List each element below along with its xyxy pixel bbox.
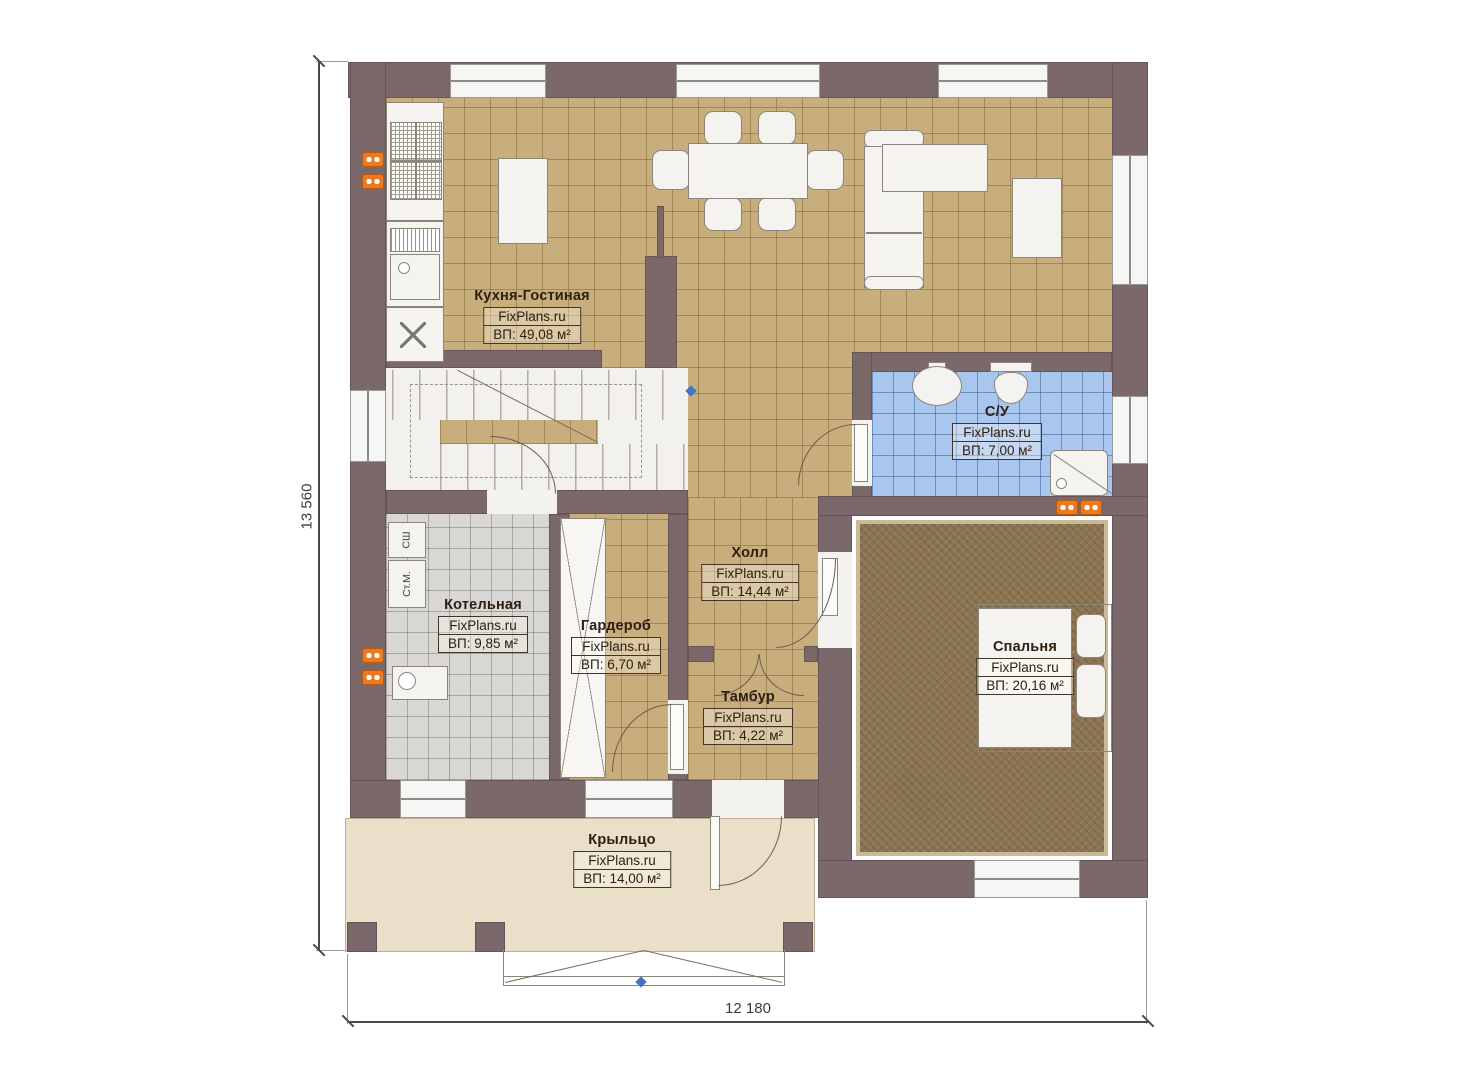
wardrobe-door-leaf — [670, 704, 684, 770]
window — [974, 860, 1080, 898]
washing-machine: Ст.М. — [388, 560, 426, 608]
room-label-box: FixPlans.ru ВП: 7,00 м² — [952, 423, 1042, 460]
room-area: ВП: 49,08 м² — [484, 326, 580, 343]
tambour-top-wall-left — [688, 646, 714, 662]
tambour-top-wall-right — [804, 646, 818, 662]
room-label-box: FixPlans.ru ВП: 9,85 м² — [438, 616, 528, 653]
room-name: Спальня — [976, 639, 1074, 655]
power-socket — [362, 670, 384, 685]
sofa-seam — [866, 232, 922, 234]
room-label-bedroom: Спальня FixPlans.ru ВП: 20,16 м² — [976, 639, 1074, 695]
extension-line — [1146, 900, 1147, 1024]
brand-text: FixPlans.ru — [704, 709, 792, 727]
room-name: Котельная — [438, 597, 528, 613]
counter-divider — [387, 306, 443, 308]
room-area: ВП: 4,22 м² — [704, 727, 792, 744]
drying-cabinet-label: СШ — [401, 531, 413, 548]
horizontal-dimension-label: 12 180 — [698, 1000, 798, 1017]
shower-drain — [1056, 478, 1067, 489]
room-name: Гардероб — [571, 618, 661, 634]
power-socket — [362, 174, 384, 189]
room-label-bathroom: С/У FixPlans.ru ВП: 7,00 м² — [952, 404, 1042, 460]
washing-machine-label: Ст.М. — [401, 571, 413, 597]
toilet-tank — [990, 362, 1032, 372]
room-label-box: FixPlans.ru ВП: 20,16 м² — [976, 658, 1074, 695]
room-label-wardrobe: Гардероб FixPlans.ru ВП: 6,70 м² — [571, 618, 661, 674]
window — [1112, 155, 1148, 285]
dining-table — [688, 143, 808, 199]
room-label-boiler: Котельная FixPlans.ru ВП: 9,85 м² — [438, 597, 528, 653]
window — [938, 64, 1048, 98]
window — [1112, 396, 1148, 464]
chair — [758, 111, 796, 145]
appliance-x-mark — [400, 322, 426, 348]
room-name: Холл — [701, 545, 799, 561]
chair — [704, 197, 742, 231]
window — [400, 780, 466, 818]
window — [450, 64, 546, 98]
pillow — [1076, 664, 1106, 718]
porch-step-line — [503, 976, 785, 977]
window — [350, 390, 386, 462]
chair — [806, 150, 844, 190]
room-area: ВП: 6,70 м² — [572, 656, 660, 673]
chair — [704, 111, 742, 145]
room-area: ВП: 20,16 м² — [977, 677, 1073, 694]
room-label-box: FixPlans.ru ВП: 49,08 м² — [483, 307, 581, 344]
window — [676, 64, 820, 98]
entrance-door-opening — [712, 780, 784, 818]
brand-text: FixPlans.ru — [572, 638, 660, 656]
porch-pillar — [347, 922, 377, 952]
room-label-kitchen: Кухня-Гостиная FixPlans.ru ВП: 49,08 м² — [474, 288, 590, 344]
room-name: Тамбур — [703, 689, 793, 705]
counter-divider — [387, 220, 443, 222]
room-label-hall: Холл FixPlans.ru ВП: 14,44 м² — [701, 545, 799, 601]
chimney-stem — [657, 206, 664, 258]
room-area: ВП: 14,00 м² — [574, 870, 670, 887]
chair — [652, 150, 690, 190]
vertical-dimension-label: 13 560 — [299, 462, 316, 552]
room-label-tambour: Тамбур FixPlans.ru ВП: 4,22 м² — [703, 689, 793, 745]
vertical-dimension-line — [318, 62, 320, 951]
floor-plan: 13 560 12 180 — [0, 0, 1474, 1080]
sofa-armrest — [864, 276, 924, 290]
window — [585, 780, 673, 818]
room-label-box: FixPlans.ru ВП: 14,00 м² — [573, 851, 671, 888]
bathroom-top-wall — [852, 352, 1112, 372]
extension-line — [347, 954, 348, 1024]
drainboard — [390, 228, 440, 252]
bathroom-door-leaf — [854, 424, 868, 482]
bathroom-sink — [912, 366, 962, 406]
chair — [758, 197, 796, 231]
brand-text: FixPlans.ru — [953, 424, 1041, 442]
horizontal-dimension-line — [348, 1021, 1148, 1023]
power-socket — [362, 152, 384, 167]
brand-text: FixPlans.ru — [702, 565, 798, 583]
room-label-box: FixPlans.ru ВП: 14,44 м² — [701, 564, 799, 601]
room-area: ВП: 9,85 м² — [439, 635, 527, 652]
brand-text: FixPlans.ru — [977, 659, 1073, 677]
room-label-box: FixPlans.ru ВП: 6,70 м² — [571, 637, 661, 674]
brand-text: FixPlans.ru — [574, 852, 670, 870]
power-socket — [1056, 500, 1078, 515]
room-name: С/У — [952, 404, 1042, 420]
sofa-seat-horizontal — [882, 144, 988, 192]
brand-text: FixPlans.ru — [484, 308, 580, 326]
room-name: Кухня-Гостиная — [474, 288, 590, 304]
power-socket — [362, 648, 384, 663]
brand-text: FixPlans.ru — [439, 617, 527, 635]
room-name: Крыльцо — [573, 832, 671, 848]
porch-pillar — [475, 922, 505, 952]
power-socket — [1080, 500, 1102, 515]
coffee-table — [1012, 178, 1062, 258]
drying-cabinet: СШ — [388, 522, 426, 558]
room-area: ВП: 14,44 м² — [702, 583, 798, 600]
boiler-dial — [398, 672, 416, 690]
sink-drain — [398, 262, 410, 274]
kitchen-island — [498, 158, 548, 244]
room-area: ВП: 7,00 м² — [953, 442, 1041, 459]
room-label-porch: Крыльцо FixPlans.ru ВП: 14,00 м² — [573, 832, 671, 888]
room-label-box: FixPlans.ru ВП: 4,22 м² — [703, 708, 793, 745]
pillow — [1076, 614, 1106, 658]
kitchen-sink — [390, 254, 440, 300]
chimney-column — [645, 256, 677, 368]
stove-hob — [390, 122, 442, 200]
porch-pillar — [783, 922, 813, 952]
